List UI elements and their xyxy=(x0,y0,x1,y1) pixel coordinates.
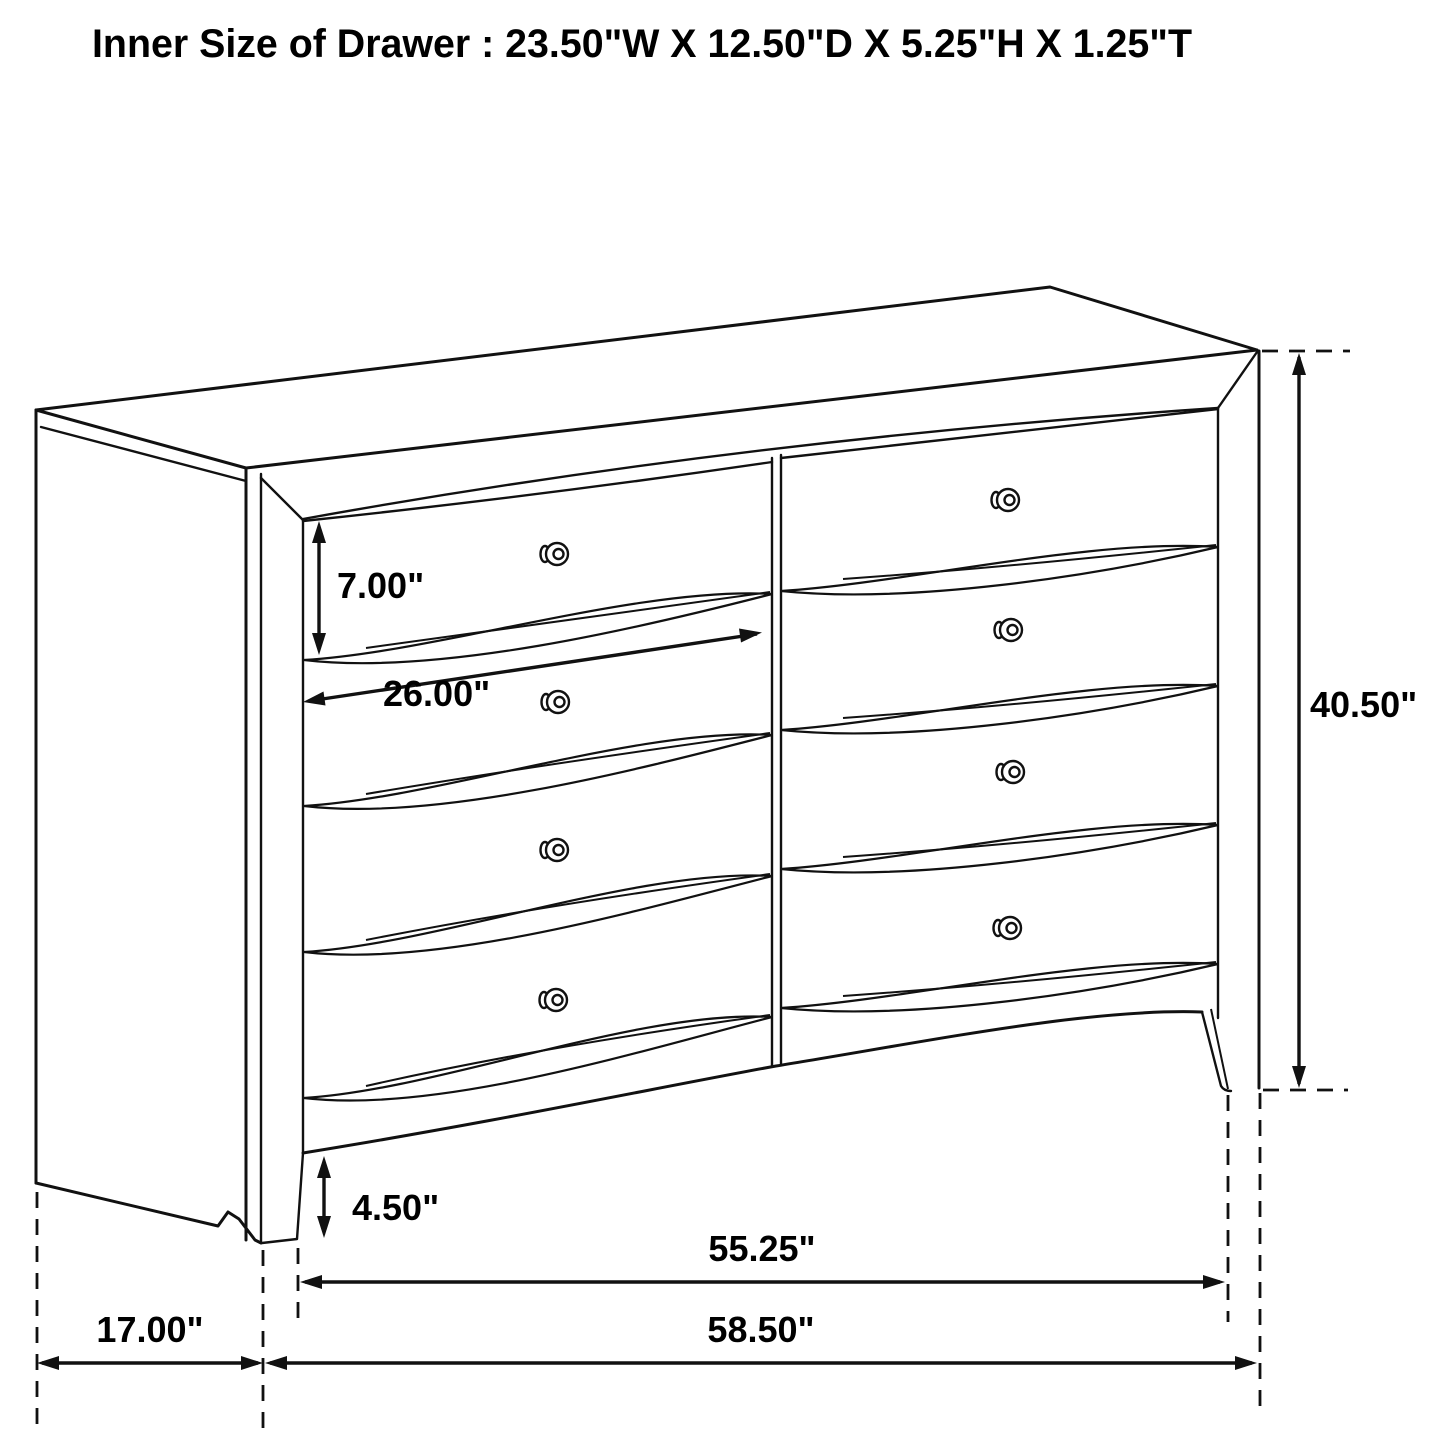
front-right-foot xyxy=(1202,1009,1231,1091)
dresser-diagram-canvas: Inner Size of Drawer : 23.50"W X 12.50"D… xyxy=(0,0,1445,1445)
drawer-knob-icon xyxy=(542,691,570,713)
dim-label-width-between-legs: 55.25" xyxy=(708,1228,815,1269)
dresser-drawing xyxy=(36,287,1259,1243)
front-left-foot xyxy=(262,1153,303,1243)
drawer-knob-icon xyxy=(541,543,569,565)
dim-label-drawer-width: 26.00" xyxy=(383,673,490,714)
dim-label-base-height: 4.50" xyxy=(352,1187,439,1228)
drawer-knob-icon xyxy=(997,761,1025,783)
left-side-panel xyxy=(36,410,261,1243)
drawer-knob-icon xyxy=(541,839,569,861)
dimension-diagram-page: Inner Size of Drawer : 23.50"W X 12.50"D… xyxy=(0,0,1445,1445)
dim-arrow-overall-width xyxy=(265,1356,1257,1370)
dim-arrow-base-height xyxy=(317,1156,331,1238)
drawer-knob-icon xyxy=(994,917,1022,939)
dim-label-drawer-front-height: 7.00" xyxy=(337,565,424,606)
dim-arrow-width-between-legs xyxy=(300,1275,1225,1289)
dim-arrow-overall-height xyxy=(1292,353,1306,1088)
dimension-arrows xyxy=(37,353,1306,1370)
top-panel xyxy=(36,287,1257,520)
drawer-knob-icon xyxy=(995,619,1023,641)
dim-arrow-drawer-front-height xyxy=(312,521,326,655)
dim-arrow-overall-depth xyxy=(37,1356,263,1370)
drawer-knob-icon xyxy=(540,989,568,1011)
dim-label-overall-height: 40.50" xyxy=(1310,684,1417,725)
drawer-knob-icon xyxy=(992,489,1020,511)
diagram-title: Inner Size of Drawer : 23.50"W X 12.50"D… xyxy=(92,22,1192,66)
dim-label-overall-depth: 17.00" xyxy=(96,1309,203,1350)
dim-label-overall-width: 58.50" xyxy=(707,1309,814,1350)
face-frame xyxy=(303,351,1259,1153)
